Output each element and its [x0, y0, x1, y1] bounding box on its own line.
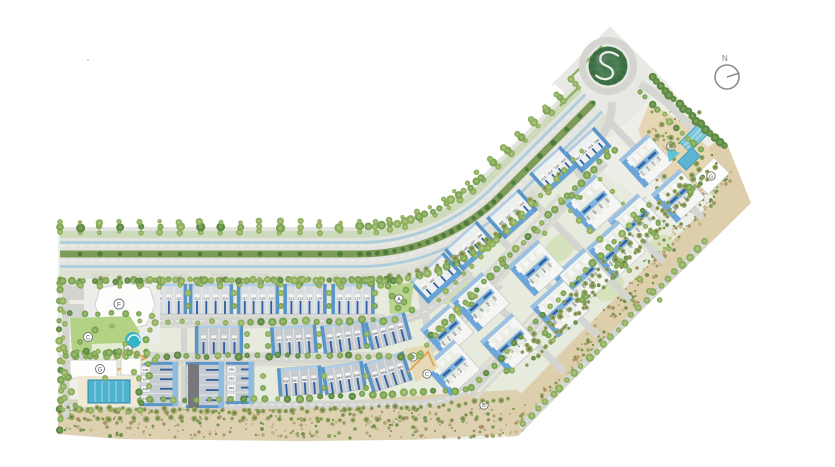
- svg-text:117: 117: [242, 296, 247, 300]
- svg-text:A: A: [397, 297, 401, 303]
- svg-text:114: 114: [204, 296, 209, 300]
- svg-text:119: 119: [260, 296, 265, 300]
- svg-text:123: 123: [307, 296, 312, 300]
- svg-text:G: G: [98, 368, 103, 374]
- svg-text:091: 091: [293, 379, 299, 383]
- svg-text:099: 099: [211, 337, 216, 341]
- svg-text:072: 072: [277, 338, 283, 342]
- svg-text:092: 092: [283, 379, 289, 383]
- svg-text:129: 129: [364, 296, 369, 300]
- svg-text:098: 098: [222, 337, 227, 341]
- svg-text:097: 097: [232, 337, 237, 341]
- svg-text:071: 071: [286, 338, 292, 342]
- svg-text:108: 108: [143, 368, 148, 372]
- svg-text:087: 087: [337, 376, 343, 381]
- svg-text:116: 116: [223, 296, 228, 300]
- svg-text:095: 095: [229, 377, 234, 381]
- svg-text:115: 115: [213, 296, 218, 300]
- svg-text:088: 088: [328, 377, 334, 382]
- svg-text:122: 122: [298, 296, 303, 300]
- svg-text:G: G: [709, 174, 713, 180]
- svg-text:112: 112: [176, 296, 181, 300]
- svg-text:094: 094: [229, 386, 234, 390]
- svg-text:100: 100: [201, 337, 206, 341]
- svg-text:C: C: [425, 372, 429, 378]
- svg-text:127: 127: [355, 296, 360, 300]
- svg-text:068: 068: [327, 336, 333, 341]
- svg-text:124: 124: [316, 296, 321, 300]
- svg-text:125: 125: [337, 296, 342, 300]
- svg-text:086: 086: [345, 374, 351, 379]
- svg-text:096: 096: [229, 368, 234, 372]
- svg-text:111: 111: [167, 296, 172, 300]
- svg-text:N: N: [722, 54, 728, 63]
- svg-text:B: B: [482, 403, 486, 409]
- svg-text:070: 070: [296, 337, 302, 341]
- svg-text:F: F: [117, 302, 121, 309]
- svg-text:126: 126: [346, 296, 351, 300]
- svg-text:069: 069: [306, 336, 312, 340]
- svg-text:089: 089: [311, 377, 317, 381]
- svg-text:090: 090: [302, 378, 308, 382]
- svg-text:113: 113: [195, 296, 200, 300]
- svg-text:121: 121: [289, 296, 294, 300]
- svg-text:118: 118: [251, 296, 256, 300]
- svg-text:067: 067: [336, 335, 342, 340]
- svg-text:120: 120: [269, 296, 274, 300]
- svg-text:085: 085: [354, 373, 360, 378]
- svg-text:065: 065: [355, 332, 361, 337]
- svg-text:C: C: [86, 336, 91, 342]
- svg-text:066: 066: [346, 333, 352, 338]
